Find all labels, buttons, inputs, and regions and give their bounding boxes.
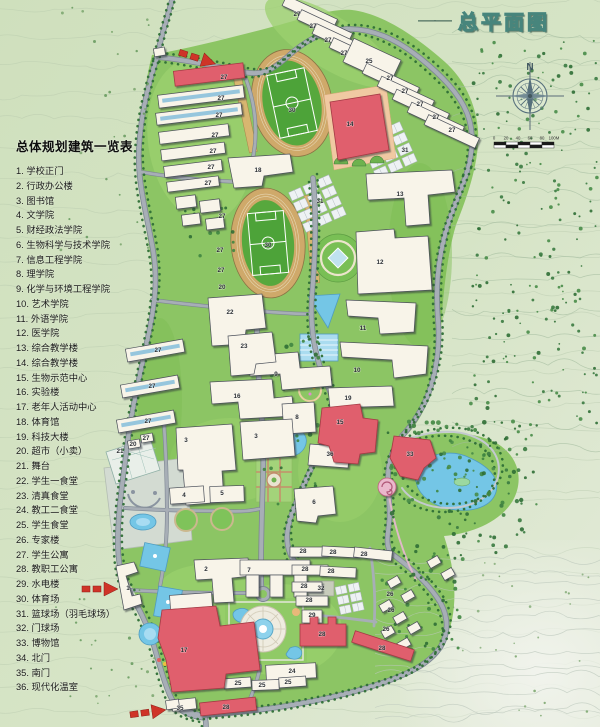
legend-item-1: 1. 学校正门: [16, 164, 148, 179]
building-label-28: 28: [318, 631, 326, 638]
legend-item-18: 18. 体育馆: [16, 415, 148, 430]
building-label-28: 28: [300, 583, 308, 590]
building-label-30: 30: [288, 107, 296, 114]
building-label-8: 8: [295, 414, 299, 421]
lake-island: [454, 478, 470, 486]
title-dash: ——: [418, 13, 450, 28]
building-label-27: 27: [432, 114, 440, 121]
building-label-28: 28: [360, 551, 368, 558]
building-label-26: 26: [386, 591, 394, 598]
legend-item-19: 19. 科技大楼: [16, 430, 148, 445]
building-12: [356, 229, 432, 294]
legend-item-31: 31. 篮球场（羽毛球场）: [16, 607, 148, 622]
building-label-27: 27: [207, 164, 215, 171]
legend-item-10: 10. 艺术学院: [16, 297, 148, 312]
building-7-wing: [270, 575, 283, 597]
scale-label: 60: [528, 136, 533, 141]
building-7-wing: [246, 575, 259, 597]
building-label-27: 27: [154, 347, 162, 354]
legend-item-21: 21. 舞台: [16, 459, 148, 474]
legend-item-12: 12. 医学院: [16, 326, 148, 341]
building-label-27: 27: [217, 95, 225, 102]
legend-item-23: 23. 清真食堂: [16, 489, 148, 504]
building-label-25: 25: [258, 682, 266, 689]
building-label-31: 31: [316, 198, 324, 205]
building-label-27: 27: [416, 101, 424, 108]
legend-item-16: 16. 实验楼: [16, 385, 148, 400]
legend-item-3: 3. 图书馆: [16, 194, 148, 209]
legend-item-27: 27. 学生公寓: [16, 548, 148, 563]
legend-item-4: 4. 文学院: [16, 208, 148, 223]
legend-item-2: 2. 行政办公楼: [16, 179, 148, 194]
building-label-16: 16: [233, 393, 241, 400]
building-label-26: 26: [387, 607, 395, 614]
building-label-27: 27: [293, 11, 301, 18]
legend-item-17: 17. 老年人活动中心: [16, 400, 148, 415]
legend-item-7: 7. 信息工程学院: [16, 253, 148, 268]
scale-label: 40: [516, 136, 521, 141]
building-label-17: 17: [180, 647, 188, 654]
legend-item-30: 30. 体育场: [16, 592, 148, 607]
legend-item-36: 36. 现代化温室: [16, 680, 148, 695]
building-label-27: 27: [324, 37, 332, 44]
legend-item-26: 26. 专家楼: [16, 533, 148, 548]
building-label-25: 25: [284, 679, 292, 686]
building-4: [169, 486, 204, 504]
legend-item-28: 28. 教职工公寓: [16, 562, 148, 577]
legend-item-5: 5. 财经政法学院: [16, 223, 148, 238]
building-label-27: 27: [386, 75, 394, 82]
campus-master-plan: 2727272727272727272727252727272727301431…: [0, 0, 600, 727]
scale-label: 100M: [549, 136, 560, 141]
building-label-18: 18: [254, 167, 262, 174]
building-label-27: 27: [309, 23, 317, 30]
building-label-4: 4: [182, 492, 186, 499]
building-label-2: 2: [204, 566, 208, 573]
building-label-29: 29: [308, 612, 316, 619]
building-label-25: 25: [365, 58, 373, 65]
building-label-20: 20: [218, 284, 226, 291]
legend-item-22: 22. 学生一食堂: [16, 474, 148, 489]
plan-title-text: 总平面图: [458, 6, 550, 35]
building-label-3: 3: [184, 437, 188, 444]
building-label-28: 28: [378, 645, 386, 652]
building-label-6: 6: [312, 499, 316, 506]
legend-list: 1. 学校正门2. 行政办公楼3. 图书馆4. 文学院5. 财经政法学院6. 生…: [16, 164, 148, 695]
building-label-27: 27: [401, 88, 409, 95]
legend-item-32: 32. 门球场: [16, 621, 148, 636]
building-25: [279, 676, 307, 688]
building-5: [210, 485, 245, 502]
building-label-30: 30: [264, 242, 272, 249]
building-label-27: 27: [211, 132, 219, 139]
building-label-11: 11: [360, 325, 367, 332]
legend-item-25: 25. 学生食堂: [16, 518, 148, 533]
building-label-23: 23: [240, 343, 248, 350]
building-label-27: 27: [218, 213, 226, 220]
building-label-28: 28: [329, 549, 337, 556]
building-label-27: 27: [204, 180, 212, 187]
building-19: [328, 386, 394, 408]
building-label-22: 22: [226, 309, 234, 316]
building-label-28: 28: [305, 597, 313, 604]
building-label-31: 31: [401, 147, 409, 154]
legend-item-20: 20. 超市（小卖）: [16, 444, 148, 459]
legend-item-34: 34. 北门: [16, 651, 148, 666]
building-label-5: 5: [220, 490, 224, 497]
building-label-27: 27: [220, 74, 228, 81]
legend-item-13: 13. 综合教学楼: [16, 341, 148, 356]
legend-item-15: 15. 生物示范中心: [16, 371, 148, 386]
scale-label: 80: [540, 136, 545, 141]
building-34-north-gate: [153, 47, 165, 57]
building-28: [320, 566, 356, 578]
building-label-3: 3: [254, 433, 258, 440]
legend-item-29: 29. 水电楼: [16, 577, 148, 592]
building-14-red: [330, 94, 389, 160]
building-label-25: 25: [234, 680, 242, 687]
legend-item-6: 6. 生物科学与技术学院: [16, 238, 148, 253]
legend-item-9: 9. 化学与环境工程学院: [16, 282, 148, 297]
building-label-27: 27: [148, 383, 156, 390]
legend-item-8: 8. 理学院: [16, 267, 148, 282]
building-label-15: 15: [336, 419, 344, 426]
building-3-library: [240, 419, 295, 460]
building-label-7: 7: [247, 567, 251, 574]
building-label-35: 35: [176, 705, 184, 712]
building-label-32: 32: [317, 585, 325, 592]
building-label-27: 27: [217, 267, 225, 274]
building-label-28: 28: [222, 704, 230, 711]
legend-item-35: 35. 南门: [16, 666, 148, 681]
building-label-9: 9: [274, 371, 278, 378]
building-label-28: 28: [301, 566, 309, 573]
building-label-13: 13: [396, 191, 404, 198]
building-label-24: 24: [288, 668, 296, 675]
building-label-27: 27: [215, 112, 223, 119]
legend-item-14: 14. 综合教学楼: [16, 356, 148, 371]
building-label-36: 36: [326, 451, 334, 458]
building-label-33: 33: [406, 451, 414, 458]
building-label-28: 28: [299, 548, 307, 555]
building-label-27: 27: [448, 127, 456, 134]
building-label-14: 14: [346, 121, 354, 128]
plan-title: —— 总平面图: [418, 6, 550, 35]
legend-title: 总体规划建筑一览表: [16, 136, 148, 155]
building-label-27: 27: [216, 247, 224, 254]
circular-garden: [314, 234, 362, 282]
building-label-12: 12: [376, 259, 384, 266]
scale-label: 20: [504, 136, 509, 141]
building-label-19: 19: [344, 395, 352, 402]
building-label-27: 27: [209, 148, 217, 155]
legend-panel: 总体规划建筑一览表 1. 学校正门2. 行政办公楼3. 图书馆4. 文学院5. …: [16, 136, 148, 695]
legend-item-33: 33. 博物馆: [16, 636, 148, 651]
building-label-26: 26: [382, 626, 390, 633]
building-label-27: 27: [340, 50, 348, 57]
building-label-28: 28: [327, 568, 335, 575]
legend-item-11: 11. 外语学院: [16, 312, 148, 327]
legend-item-24: 24. 教工二食堂: [16, 503, 148, 518]
building-label-10: 10: [353, 367, 361, 374]
